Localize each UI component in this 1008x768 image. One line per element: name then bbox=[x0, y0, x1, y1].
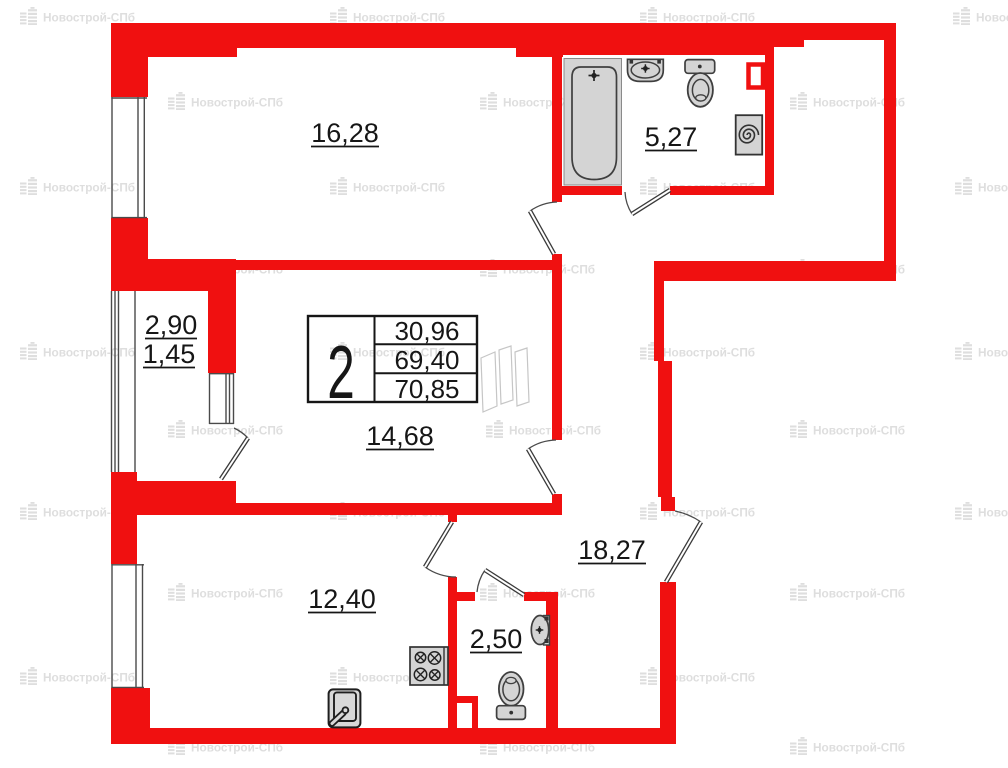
svg-text:30,96: 30,96 bbox=[394, 316, 459, 346]
svg-text:5,27: 5,27 bbox=[645, 122, 698, 152]
svg-text:1,45: 1,45 bbox=[143, 339, 196, 369]
svg-text:2: 2 bbox=[327, 331, 355, 415]
svg-text:16,28: 16,28 bbox=[311, 118, 379, 148]
svg-text:69,40: 69,40 bbox=[394, 345, 459, 375]
svg-text:2,90: 2,90 bbox=[145, 310, 198, 340]
svg-text:18,27: 18,27 bbox=[578, 535, 646, 565]
svg-text:70,85: 70,85 bbox=[394, 374, 459, 404]
svg-text:2,50: 2,50 bbox=[470, 624, 523, 654]
svg-text:14,68: 14,68 bbox=[366, 421, 434, 451]
svg-text:12,40: 12,40 bbox=[308, 584, 376, 614]
